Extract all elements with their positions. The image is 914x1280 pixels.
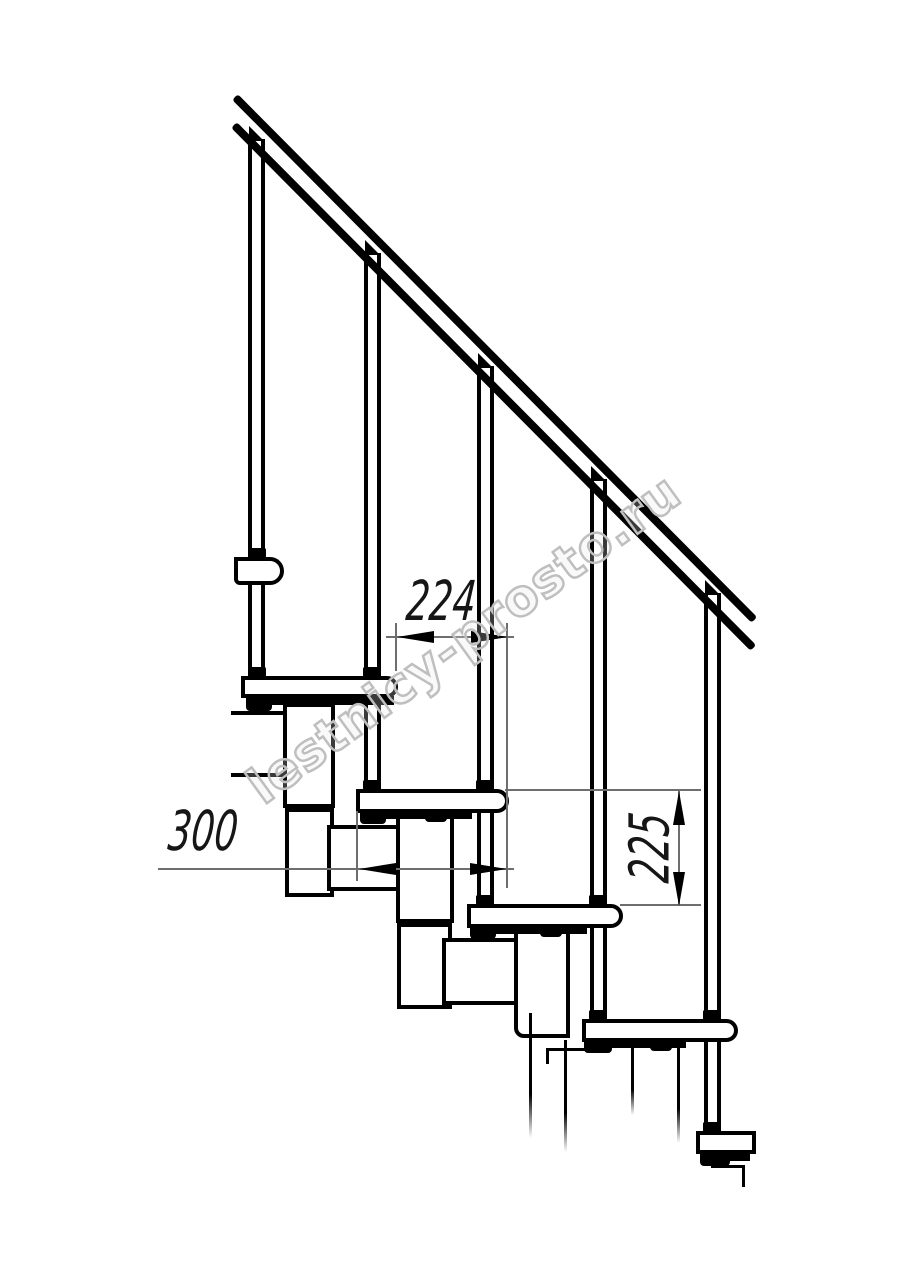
tread-bracket <box>246 696 272 711</box>
rail-wedge <box>705 580 720 595</box>
spine-module-f <box>514 929 570 1038</box>
staircase-drawing: 224 300 225 lestnicy-prosto.ru <box>0 0 914 1280</box>
tread-5 <box>582 1019 738 1042</box>
rail-wedge <box>249 126 264 141</box>
baluster-collar <box>589 1010 607 1020</box>
spine-module-b <box>283 703 335 808</box>
spine-module-a <box>231 711 290 777</box>
arrowhead-left <box>359 863 396 875</box>
tread-underside <box>272 696 394 705</box>
tread-2 <box>241 676 398 698</box>
baluster-collar <box>703 1010 721 1020</box>
baluster-collar <box>363 667 381 677</box>
extension-line <box>505 789 701 791</box>
tread-1-end-view <box>234 557 284 585</box>
extension-line <box>506 623 508 888</box>
spine-module-c <box>327 825 406 891</box>
baluster-5 <box>704 593 721 1131</box>
baluster-collar <box>363 780 381 790</box>
rail-wedge <box>478 353 493 368</box>
tread-4 <box>467 904 623 928</box>
rail-wedge <box>591 466 606 481</box>
break-line <box>742 1165 745 1187</box>
extension-line <box>356 811 358 881</box>
baluster-collar <box>476 780 494 790</box>
dimension-label-224: 224 <box>404 574 478 629</box>
support-cut-line <box>564 1040 567 1152</box>
tread-underside <box>700 1152 750 1161</box>
tread-underside <box>492 926 587 934</box>
support-cut-line <box>677 1045 680 1143</box>
rail-wedge <box>365 240 380 255</box>
baluster-1 <box>248 139 265 676</box>
tread-6 <box>696 1131 756 1154</box>
spine-module-e <box>442 938 518 1005</box>
baluster-collar <box>589 895 607 905</box>
extension-line <box>620 904 701 906</box>
tread-3 <box>356 789 509 813</box>
baluster-collar <box>248 548 266 558</box>
baluster-collar <box>703 1122 721 1132</box>
baluster-collar <box>248 667 266 677</box>
support-cut-line <box>631 1042 634 1115</box>
handrail-upper-line <box>232 94 757 623</box>
baluster-2 <box>364 253 381 789</box>
arrowhead-right <box>471 631 508 643</box>
tread-underside <box>606 1040 686 1048</box>
dimension-label-300: 300 <box>166 804 240 859</box>
arrowhead-right <box>470 863 507 875</box>
dimension-line <box>158 868 514 870</box>
baluster-4 <box>590 479 607 1019</box>
support-cut-line <box>529 1013 532 1138</box>
tread-underside <box>382 811 472 819</box>
break-line <box>546 1048 588 1051</box>
dimension-label-225: 225 <box>623 802 678 893</box>
baluster-collar <box>476 895 494 905</box>
